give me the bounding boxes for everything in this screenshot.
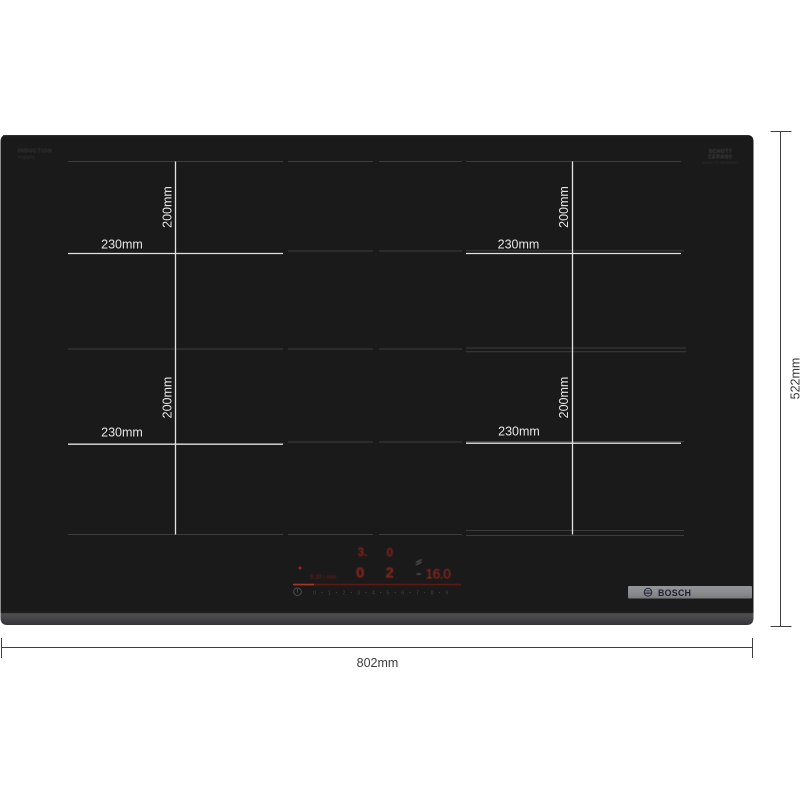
svg-text:9: 9: [445, 591, 448, 597]
svg-text:0: 0: [387, 546, 394, 560]
svg-text:CERAN®: CERAN®: [708, 154, 733, 161]
svg-text:2: 2: [386, 565, 394, 582]
svg-text:3: 3: [357, 591, 360, 597]
svg-text:0: 0: [313, 591, 316, 597]
svg-text:BOSCH: BOSCH: [658, 588, 691, 598]
svg-text:230mm: 230mm: [101, 426, 143, 440]
svg-text:MADE IN GERMANY: MADE IN GERMANY: [702, 161, 739, 165]
svg-text:230mm: 230mm: [498, 238, 540, 252]
svg-text:6: 6: [401, 591, 404, 597]
svg-text:0: 0: [356, 565, 364, 582]
svg-text:7: 7: [416, 591, 419, 597]
svg-text:PXE875: PXE875: [18, 155, 35, 160]
svg-text:230mm: 230mm: [498, 425, 540, 439]
svg-text:802mm: 802mm: [357, 656, 399, 670]
svg-text:200mm: 200mm: [557, 377, 571, 419]
svg-text:522mm: 522mm: [789, 358, 800, 400]
svg-text:200mm: 200mm: [161, 377, 175, 419]
svg-text:16.0: 16.0: [426, 567, 451, 582]
svg-text:200mm: 200mm: [557, 186, 571, 228]
svg-text:1: 1: [328, 591, 331, 597]
svg-text:8: 8: [431, 591, 434, 597]
svg-text:2: 2: [342, 591, 345, 597]
svg-text:3.: 3.: [358, 545, 368, 559]
svg-text:200mm: 200mm: [161, 186, 175, 228]
svg-text:8.30 | min: 8.30 | min: [310, 575, 336, 581]
svg-text:4: 4: [372, 591, 375, 597]
svg-text:230mm: 230mm: [101, 238, 143, 252]
svg-text:5: 5: [386, 591, 389, 597]
svg-text:INDUCTION: INDUCTION: [18, 149, 52, 155]
